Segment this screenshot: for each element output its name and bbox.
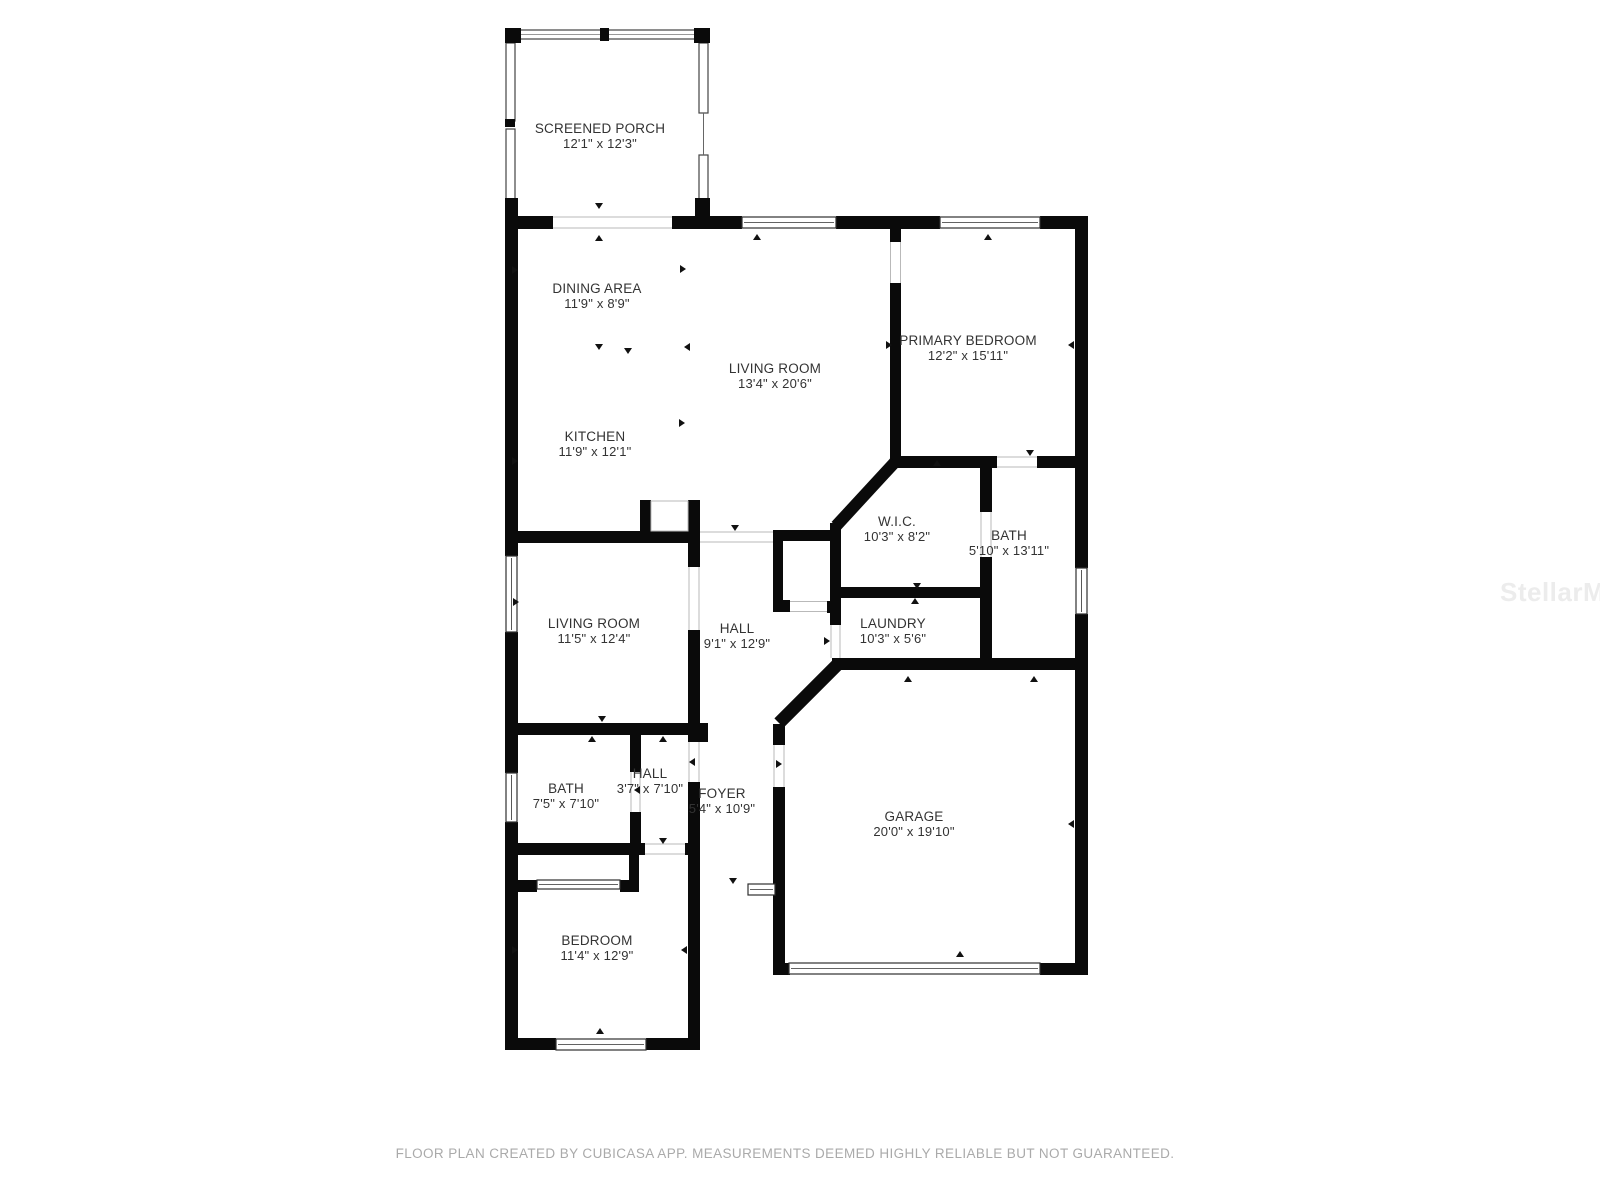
garage-door [789, 963, 1040, 974]
primary-bedroom-window [940, 217, 1040, 228]
room-dims: 12'2" x 15'11" [899, 348, 1037, 363]
room-label-living-room: LIVING ROOM 13'4" x 20'6" [729, 361, 821, 391]
room-dims: 5'10" x 13'11" [969, 543, 1049, 558]
room-name: PRIMARY BEDROOM [899, 333, 1037, 348]
bath-2-window [506, 773, 517, 822]
room-dims: 11'4" x 12'9" [561, 948, 634, 963]
room-name: LIVING ROOM [548, 616, 640, 631]
footer-disclaimer: FLOOR PLAN CREATED BY CUBICASA APP. MEAS… [396, 1146, 1175, 1161]
room-label-kitchen: KITCHEN 11'9" x 12'1" [559, 429, 632, 459]
room-label-garage: GARAGE 20'0" x 19'10" [873, 809, 954, 839]
room-dims: 20'0" x 19'10" [873, 824, 954, 839]
room-name: BEDROOM [561, 933, 634, 948]
floor-plan-drawing [0, 0, 1600, 1200]
room-label-bath-2: BATH 7'5" x 7'10" [533, 781, 599, 811]
room-dims: 5'4" x 10'9" [689, 801, 755, 816]
room-dims: 7'5" x 7'10" [533, 796, 599, 811]
room-name: HALL [704, 621, 770, 636]
floor-plan-page: SCREENED PORCH 12'1" x 12'3" DINING AREA… [0, 0, 1600, 1200]
living-room-2-window [506, 556, 517, 632]
room-label-living-room-2: LIVING ROOM 11'5" x 12'4" [548, 616, 640, 646]
room-name: BATH [533, 781, 599, 796]
room-label-primary-bedroom: PRIMARY BEDROOM 12'2" x 15'11" [899, 333, 1037, 363]
room-name: GARAGE [873, 809, 954, 824]
room-name: HALL [617, 766, 683, 781]
room-label-bedroom: BEDROOM 11'4" x 12'9" [561, 933, 634, 963]
room-label-foyer: FOYER 5'4" x 10'9" [689, 786, 755, 816]
bedroom-closet-slider [537, 880, 620, 889]
room-label-laundry: LAUNDRY 10'3" x 5'6" [860, 616, 926, 646]
room-label-wic: W.I.C. 10'3" x 8'2" [864, 514, 930, 544]
bedroom-window [556, 1039, 646, 1050]
bath-window [1076, 568, 1087, 614]
room-dims: 9'1" x 12'9" [704, 636, 770, 651]
room-dims: 3'7" x 7'10" [617, 781, 683, 796]
room-label-bath: BATH 5'10" x 13'11" [969, 528, 1049, 558]
room-label-screened-porch: SCREENED PORCH 12'1" x 12'3" [535, 121, 665, 151]
room-name: LAUNDRY [860, 616, 926, 631]
room-dims: 12'1" x 12'3" [535, 136, 665, 151]
room-label-hall-2: HALL 3'7" x 7'10" [617, 766, 683, 796]
room-name: FOYER [689, 786, 755, 801]
room-dims: 11'5" x 12'4" [548, 631, 640, 646]
room-dims: 11'9" x 12'1" [559, 444, 632, 459]
room-dims: 10'3" x 5'6" [860, 631, 926, 646]
room-name: W.I.C. [864, 514, 930, 529]
room-name: KITCHEN [559, 429, 632, 444]
living-room-window [742, 217, 836, 228]
room-label-hall: HALL 9'1" x 12'9" [704, 621, 770, 651]
room-label-dining-area: DINING AREA 11'9" x 8'9" [552, 281, 641, 311]
room-name: LIVING ROOM [729, 361, 821, 376]
room-name: SCREENED PORCH [535, 121, 665, 136]
room-dims: 11'9" x 8'9" [552, 296, 641, 311]
foyer-sidelight [748, 884, 775, 895]
room-dims: 13'4" x 20'6" [729, 376, 821, 391]
room-name: DINING AREA [552, 281, 641, 296]
room-name: BATH [969, 528, 1049, 543]
room-dims: 10'3" x 8'2" [864, 529, 930, 544]
watermark: StellarMLS [1500, 577, 1600, 608]
